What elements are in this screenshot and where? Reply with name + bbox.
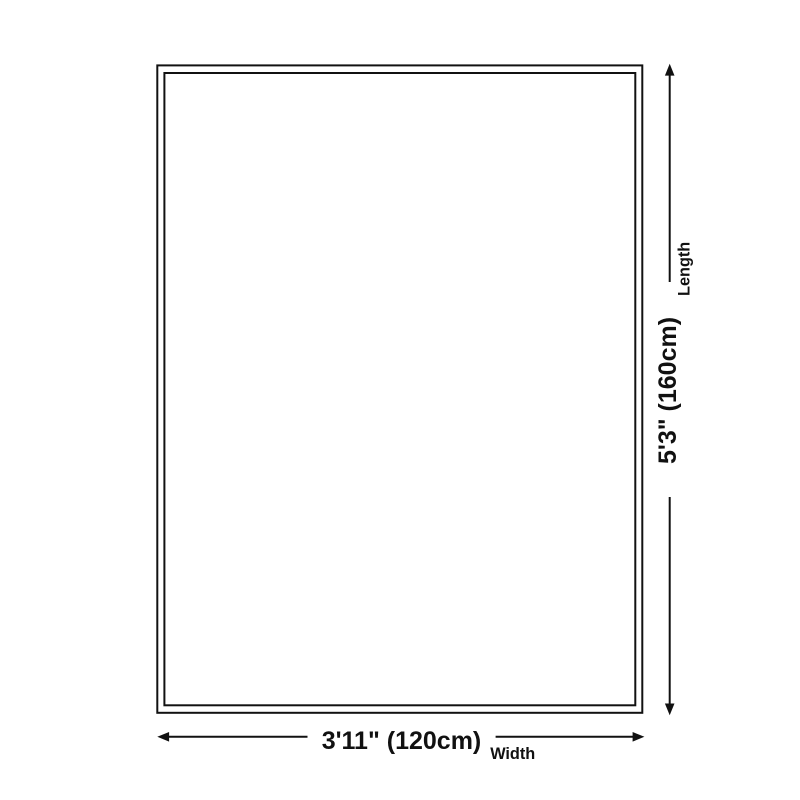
svg-text:3'11" (120cm): 3'11" (120cm) <box>322 727 482 755</box>
svg-text:Width: Width <box>490 745 535 763</box>
svg-text:5'3" (160cm): 5'3" (160cm) <box>654 317 682 464</box>
svg-text:Length: Length <box>676 242 694 296</box>
